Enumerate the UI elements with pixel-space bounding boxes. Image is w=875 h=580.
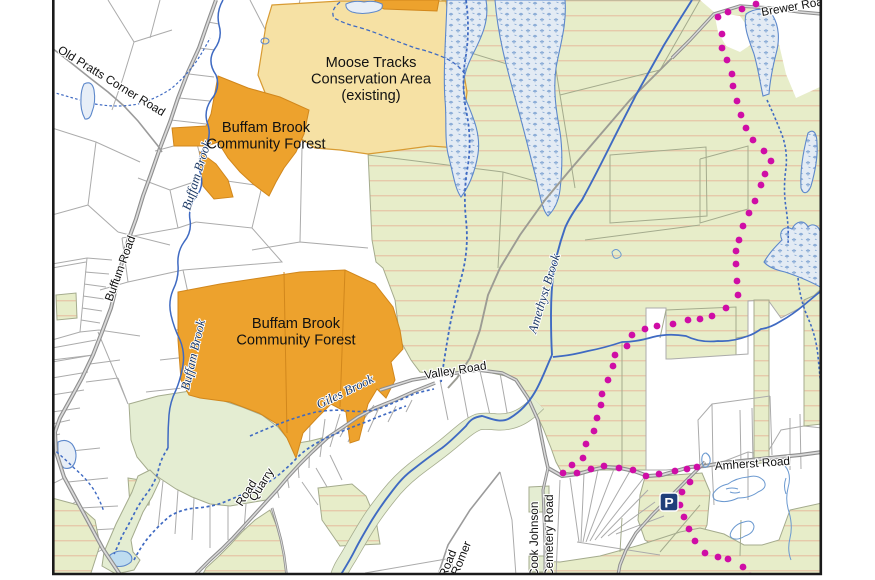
svg-text:Conservation Area: Conservation Area — [311, 72, 432, 88]
svg-text:Moose Tracks: Moose Tracks — [326, 55, 417, 71]
svg-text:Community Forest: Community Forest — [236, 333, 355, 349]
svg-text:Buffam Brook: Buffam Brook — [252, 316, 341, 332]
svg-text:Cemetery Road: Cemetery Road — [542, 494, 556, 577]
svg-text:Buffam Brook: Buffam Brook — [222, 120, 311, 136]
svg-text:Cook Johnson: Cook Johnson — [527, 502, 541, 577]
svg-text:P: P — [664, 495, 673, 511]
svg-text:Community Forest: Community Forest — [206, 137, 325, 153]
svg-text:(existing): (existing) — [341, 88, 400, 104]
